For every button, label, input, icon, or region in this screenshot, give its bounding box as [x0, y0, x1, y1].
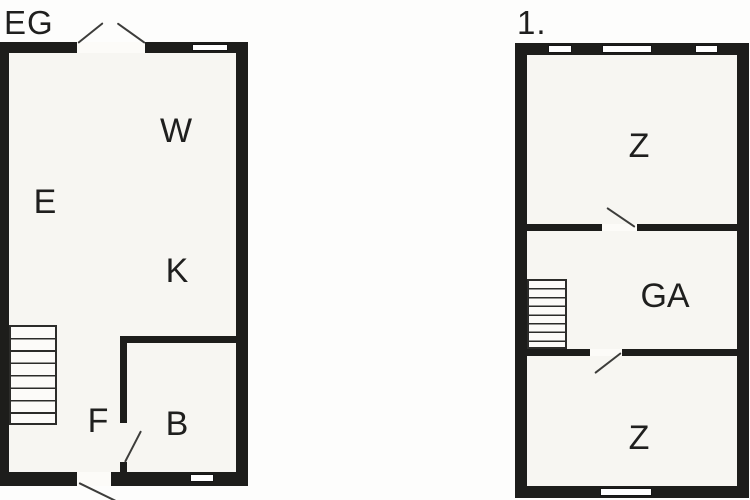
first-divider-wall-lower	[527, 349, 737, 356]
first-wall-right	[737, 43, 749, 498]
room-label-ga: GA	[640, 279, 689, 313]
floor-label-first: 1.	[517, 6, 547, 39]
floorplan-canvas: EG W E K F B 1.	[0, 0, 750, 500]
eg-top-door-leaf-right	[117, 22, 146, 43]
eg-staircase	[9, 325, 57, 425]
floorplan-first: 1. Z GA Z	[450, 0, 750, 500]
room-label-f: F	[88, 404, 109, 438]
room-label-k: K	[166, 254, 189, 288]
eg-room-b-wall-west	[120, 336, 127, 423]
first-top-window-1	[548, 45, 572, 53]
eg-top-door-leaf-left	[77, 22, 103, 44]
room-label-w: W	[160, 114, 192, 148]
first-top-window-3	[695, 45, 718, 53]
room-label-z-top: Z	[629, 129, 650, 163]
first-staircase	[527, 279, 567, 349]
floor-label-eg: EG	[4, 6, 54, 39]
room-label-b: B	[166, 407, 189, 441]
first-top-window-2	[602, 45, 652, 53]
eg-top-window	[192, 44, 228, 51]
first-bottom-window	[600, 488, 652, 496]
eg-wall-left	[0, 42, 9, 486]
floorplan-eg: EG W E K F B	[0, 0, 300, 500]
eg-room-b-wall-west-stub	[120, 462, 127, 474]
first-wall-left	[515, 43, 527, 498]
eg-bottom-window	[190, 474, 214, 482]
eg-top-door-opening	[77, 42, 145, 53]
room-label-e: E	[34, 185, 57, 219]
eg-wall-right	[236, 42, 248, 486]
eg-room-b-wall-north	[120, 336, 240, 343]
room-label-z-bottom: Z	[629, 421, 650, 455]
